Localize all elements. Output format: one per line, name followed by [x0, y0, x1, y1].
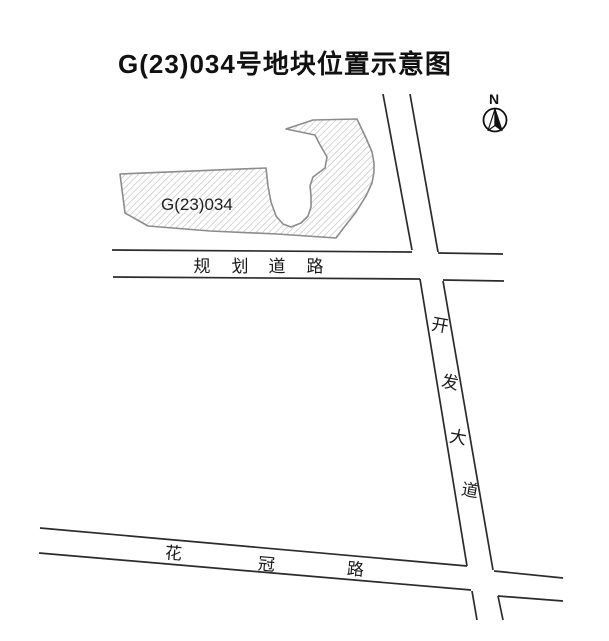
road-kaifa-left-line-upper	[383, 94, 412, 250]
road-planned-label-char: 规	[194, 257, 211, 276]
road-huaguan-top-left-line	[40, 528, 467, 566]
road-planned-bottom-right-line	[443, 280, 504, 281]
road-planned: 规 划 道 路	[112, 250, 504, 281]
road-huaguan-top-right-line	[494, 571, 563, 578]
road-planned-label-char: 道	[269, 257, 286, 276]
road-kaifa-label-char: 大	[448, 427, 468, 449]
map-canvas: G(23)034 规 划 道 路 开 发 大 道	[0, 0, 609, 641]
road-planned-label-char: 路	[307, 257, 324, 276]
compass-needle-left-icon	[488, 109, 495, 131]
road-huaguan: 花 冠 路	[39, 528, 563, 601]
road-huaguan-bottom-left-line	[39, 553, 471, 590]
parcel-area: G(23)034	[120, 119, 374, 238]
road-kaifa-label-char: 开	[430, 315, 450, 337]
plot-location-map-page: G(23)034号地块位置示意图 G(23)034 规 划 道 路	[0, 0, 609, 641]
parcel-label: G(23)034	[161, 195, 233, 214]
road-kaifa-label-char: 发	[440, 372, 460, 394]
road-kaifa-label-char: 道	[460, 480, 480, 502]
north-compass: N	[484, 91, 507, 132]
road-kaifa-right-line-middle	[443, 281, 493, 570]
road-planned-top-left-line	[112, 250, 412, 252]
road-kaifa-left-line-lower	[472, 591, 477, 620]
road-planned-bottom-left-line	[113, 277, 420, 279]
road-kaifa: 开 发 大 道	[383, 94, 503, 620]
road-planned-top-right-line	[438, 253, 503, 254]
road-huaguan-label-char: 花	[164, 543, 183, 563]
compass-needle-right-icon	[495, 109, 502, 131]
road-planned-label-char: 划	[232, 257, 249, 276]
road-kaifa-right-line-lower	[498, 596, 503, 620]
road-kaifa-right-line-upper	[410, 94, 438, 252]
parcel-polygon	[120, 119, 374, 238]
road-huaguan-bottom-right-line	[498, 596, 563, 601]
north-label: N	[489, 91, 499, 107]
road-huaguan-label-char: 冠	[257, 554, 276, 574]
road-huaguan-label-char: 路	[346, 559, 365, 579]
